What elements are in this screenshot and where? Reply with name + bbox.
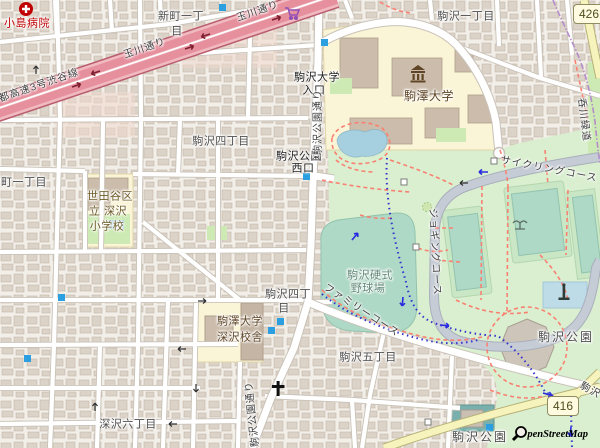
komazawa-park-label-south: 駒沢公園	[452, 430, 508, 444]
hospital-icon	[19, 2, 33, 16]
komazawa-university-label: 駒澤大学	[404, 89, 454, 103]
park-west-gate-label-line2: 西口	[292, 162, 315, 175]
map-canvas[interactable]: 小島病院 新町一丁 目 玉川通り 玉川通り 首都高速3号渋谷線 駒沢一丁目 駒沢…	[0, 0, 600, 448]
fukasawa-6chome-label: 深沢六丁目	[99, 418, 157, 431]
school-label-line3: 小学校	[90, 220, 125, 233]
komazawa-5chome-label: 駒沢五丁目	[339, 351, 397, 364]
park-pond	[337, 130, 387, 157]
shinmachi-1chome-label-line2: 目	[171, 25, 183, 38]
fukasawa-campus-label-line2: 深沢校舎	[217, 331, 263, 344]
komazawa-park-label-east: 駒沢公園	[538, 330, 594, 344]
route-426-badge: 426	[573, 4, 600, 24]
attribution-text: penStreetMap	[527, 429, 588, 440]
hospital-label: 小島病院	[4, 17, 50, 30]
komazawa-univ-entrance-label-line1: 駒沢大学	[294, 71, 340, 84]
openstreetmap-attribution[interactable]: penStreetMap	[511, 425, 588, 443]
route-416-badge: 416	[547, 396, 579, 416]
baseball-field-label-line2: 野球場	[351, 282, 386, 295]
komazawa-1chome-label: 駒沢一丁目	[437, 10, 495, 23]
machi-1chome-label: 町一丁目	[1, 176, 47, 189]
school-label-line2: 立 深沢	[89, 205, 127, 218]
komazawa-4chome-mid-label-line1: 駒沢四丁	[265, 288, 311, 301]
school-label-line1: 世田谷区	[87, 190, 133, 203]
komazawa-4chome-mid-label-line2: 目	[278, 302, 290, 315]
shinmachi-1chome-label-line1: 新町一丁	[158, 10, 204, 23]
komazawa-park-dori-label-north: 駒沢公園通り	[313, 89, 325, 155]
baseball-field-label-line1: 駒沢硬式	[347, 269, 393, 282]
komazawa-4chome-north-label: 駒沢四丁目	[192, 135, 250, 148]
fukasawa-campus-label-line1: 駒澤大学	[217, 315, 263, 328]
